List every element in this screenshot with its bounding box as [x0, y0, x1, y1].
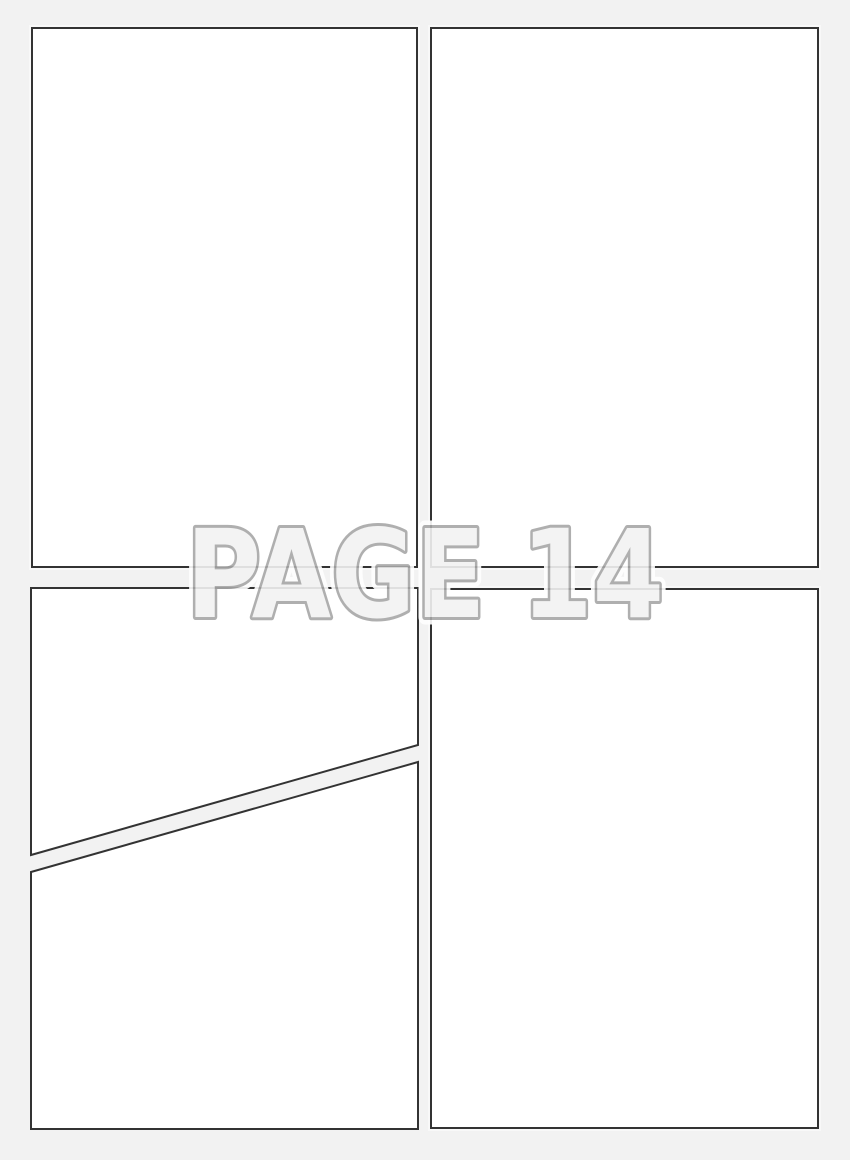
comic-panel-top-right	[430, 27, 819, 568]
comic-panel-top-left	[31, 27, 418, 568]
comic-panel-bottom-left-group	[30, 587, 420, 1130]
comic-page-template: PAGE 14 PAGE 14	[0, 0, 850, 1160]
comic-panel-bottom-right	[430, 588, 819, 1129]
